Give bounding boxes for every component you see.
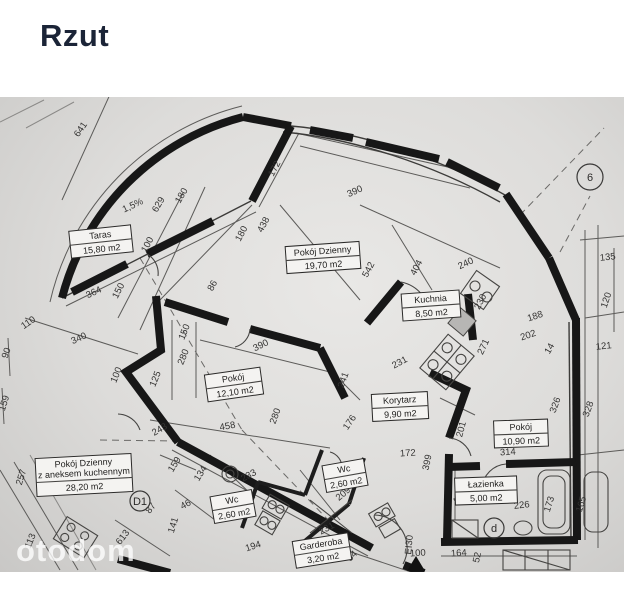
dimension-label: 188 <box>526 309 544 324</box>
otodom-watermark: otodom <box>16 533 136 569</box>
dimension-label: 164 <box>451 547 468 559</box>
room-label: Wc2,60 m2 <box>210 490 256 524</box>
room-area: 10,90 m2 <box>502 435 540 446</box>
dimension-label: 458 <box>219 420 237 434</box>
dimension-label: 120 <box>599 291 614 309</box>
dimension-label: 134 <box>192 464 210 483</box>
floor-plan-drawing: 6411,5%629180100150364861723901804385424… <box>0 97 624 572</box>
room-labels: Taras15,80 m2Pokój Dzienny19,70 m2Kuchni… <box>35 225 548 568</box>
dimension-label: 180 <box>173 186 190 205</box>
dimension-label: 314 <box>500 446 517 458</box>
dimension-label: 125 <box>148 370 164 389</box>
dimension-label: 326 <box>548 396 564 415</box>
dimension-label: 52 <box>471 551 484 564</box>
dimension-label: 180 <box>233 224 250 243</box>
dimension-label: EI30 <box>403 535 416 555</box>
marker-text: 6 <box>587 172 593 184</box>
page-header: Rzut <box>0 0 624 97</box>
floor-plan-image[interactable]: 6411,5%629180100150364861723901804385424… <box>0 97 624 572</box>
kitchen-hob <box>420 334 474 390</box>
dimension-label: 280 <box>176 348 192 367</box>
room-label: Garderoba3,20 m2 <box>292 533 352 568</box>
plan-marker: D1 <box>130 491 150 511</box>
dimension-label: 194 <box>244 539 262 554</box>
dimension-label: 100 <box>109 366 125 385</box>
room-name: Pokój <box>509 422 532 433</box>
dimension-label: 173 <box>542 495 557 513</box>
toilet <box>514 521 532 535</box>
wc-fixtures-1 <box>369 503 403 539</box>
dimension-label: 629 <box>150 195 167 214</box>
dimension-label: 1,5% <box>121 196 146 215</box>
dimension-label: 86 <box>205 279 220 294</box>
marker-text: D1 <box>133 496 147 508</box>
marker-text: d <box>491 523 497 535</box>
neighbor-grid <box>503 550 570 570</box>
dimension-label: 438 <box>255 215 272 234</box>
dimension-label: 90 <box>0 346 14 360</box>
dimension-label: 231 <box>390 354 409 371</box>
dimension-label: 542 <box>360 260 377 279</box>
room-area: 5,00 m2 <box>470 492 503 503</box>
dimension-label: 159 <box>0 394 12 412</box>
dimension-label: 328 <box>581 400 597 419</box>
dimension-label: 399 <box>421 454 435 472</box>
room-area: 28,20 m2 <box>66 481 104 493</box>
dimension-label: 280 <box>268 407 284 426</box>
room-label: Pokój Dzienny19,70 m2 <box>285 241 361 273</box>
dimension-label: 176 <box>341 413 359 432</box>
dimension-label: 271 <box>475 337 492 356</box>
dimension-label: 141 <box>166 516 181 534</box>
dimension-label: 241 <box>336 371 352 390</box>
room-label: Taras15,80 m2 <box>69 225 133 258</box>
dimension-label: 230 <box>472 292 489 311</box>
page-title: Rzut <box>40 18 109 54</box>
dimension-label: 121 <box>595 340 612 353</box>
dimension-label: 150 <box>110 281 127 300</box>
dimension-label: 172 <box>400 447 417 459</box>
room-label: Wc2,60 m2 <box>322 459 368 493</box>
dimension-label: 14 <box>542 341 557 356</box>
room-label: Kuchnia8,50 m2 <box>401 290 461 321</box>
room-label: Łazienka5,00 m2 <box>455 476 518 505</box>
footer-whitespace <box>0 572 624 600</box>
plan-marker: d <box>484 518 504 538</box>
dimension-label: 202 <box>519 328 537 343</box>
plan-marker: 6 <box>577 164 603 190</box>
room-label: Korytarz9,90 m2 <box>371 392 428 422</box>
dimension-label: 159 <box>166 455 184 474</box>
dimension-label: 390 <box>251 337 270 354</box>
room-name: Korytarz <box>383 394 417 406</box>
room-label: Pokój Dziennyz aneksem kuchennym28,20 m2 <box>35 454 133 497</box>
room-name: Łazienka <box>468 478 504 489</box>
dimension-label: 641 <box>72 120 90 139</box>
dimension-label: 135 <box>599 251 616 264</box>
room-label: Pokój12,10 m2 <box>204 367 263 402</box>
dimension-label: 150 <box>177 323 193 342</box>
dimension-label: 46 <box>179 497 194 512</box>
dimension-label: 240 <box>456 255 475 272</box>
room-label: Pokój10,90 m2 <box>494 419 549 448</box>
dimension-label: 110 <box>19 314 38 332</box>
room-area: 9,90 m2 <box>384 408 417 420</box>
dimension-label: 390 <box>346 183 365 199</box>
